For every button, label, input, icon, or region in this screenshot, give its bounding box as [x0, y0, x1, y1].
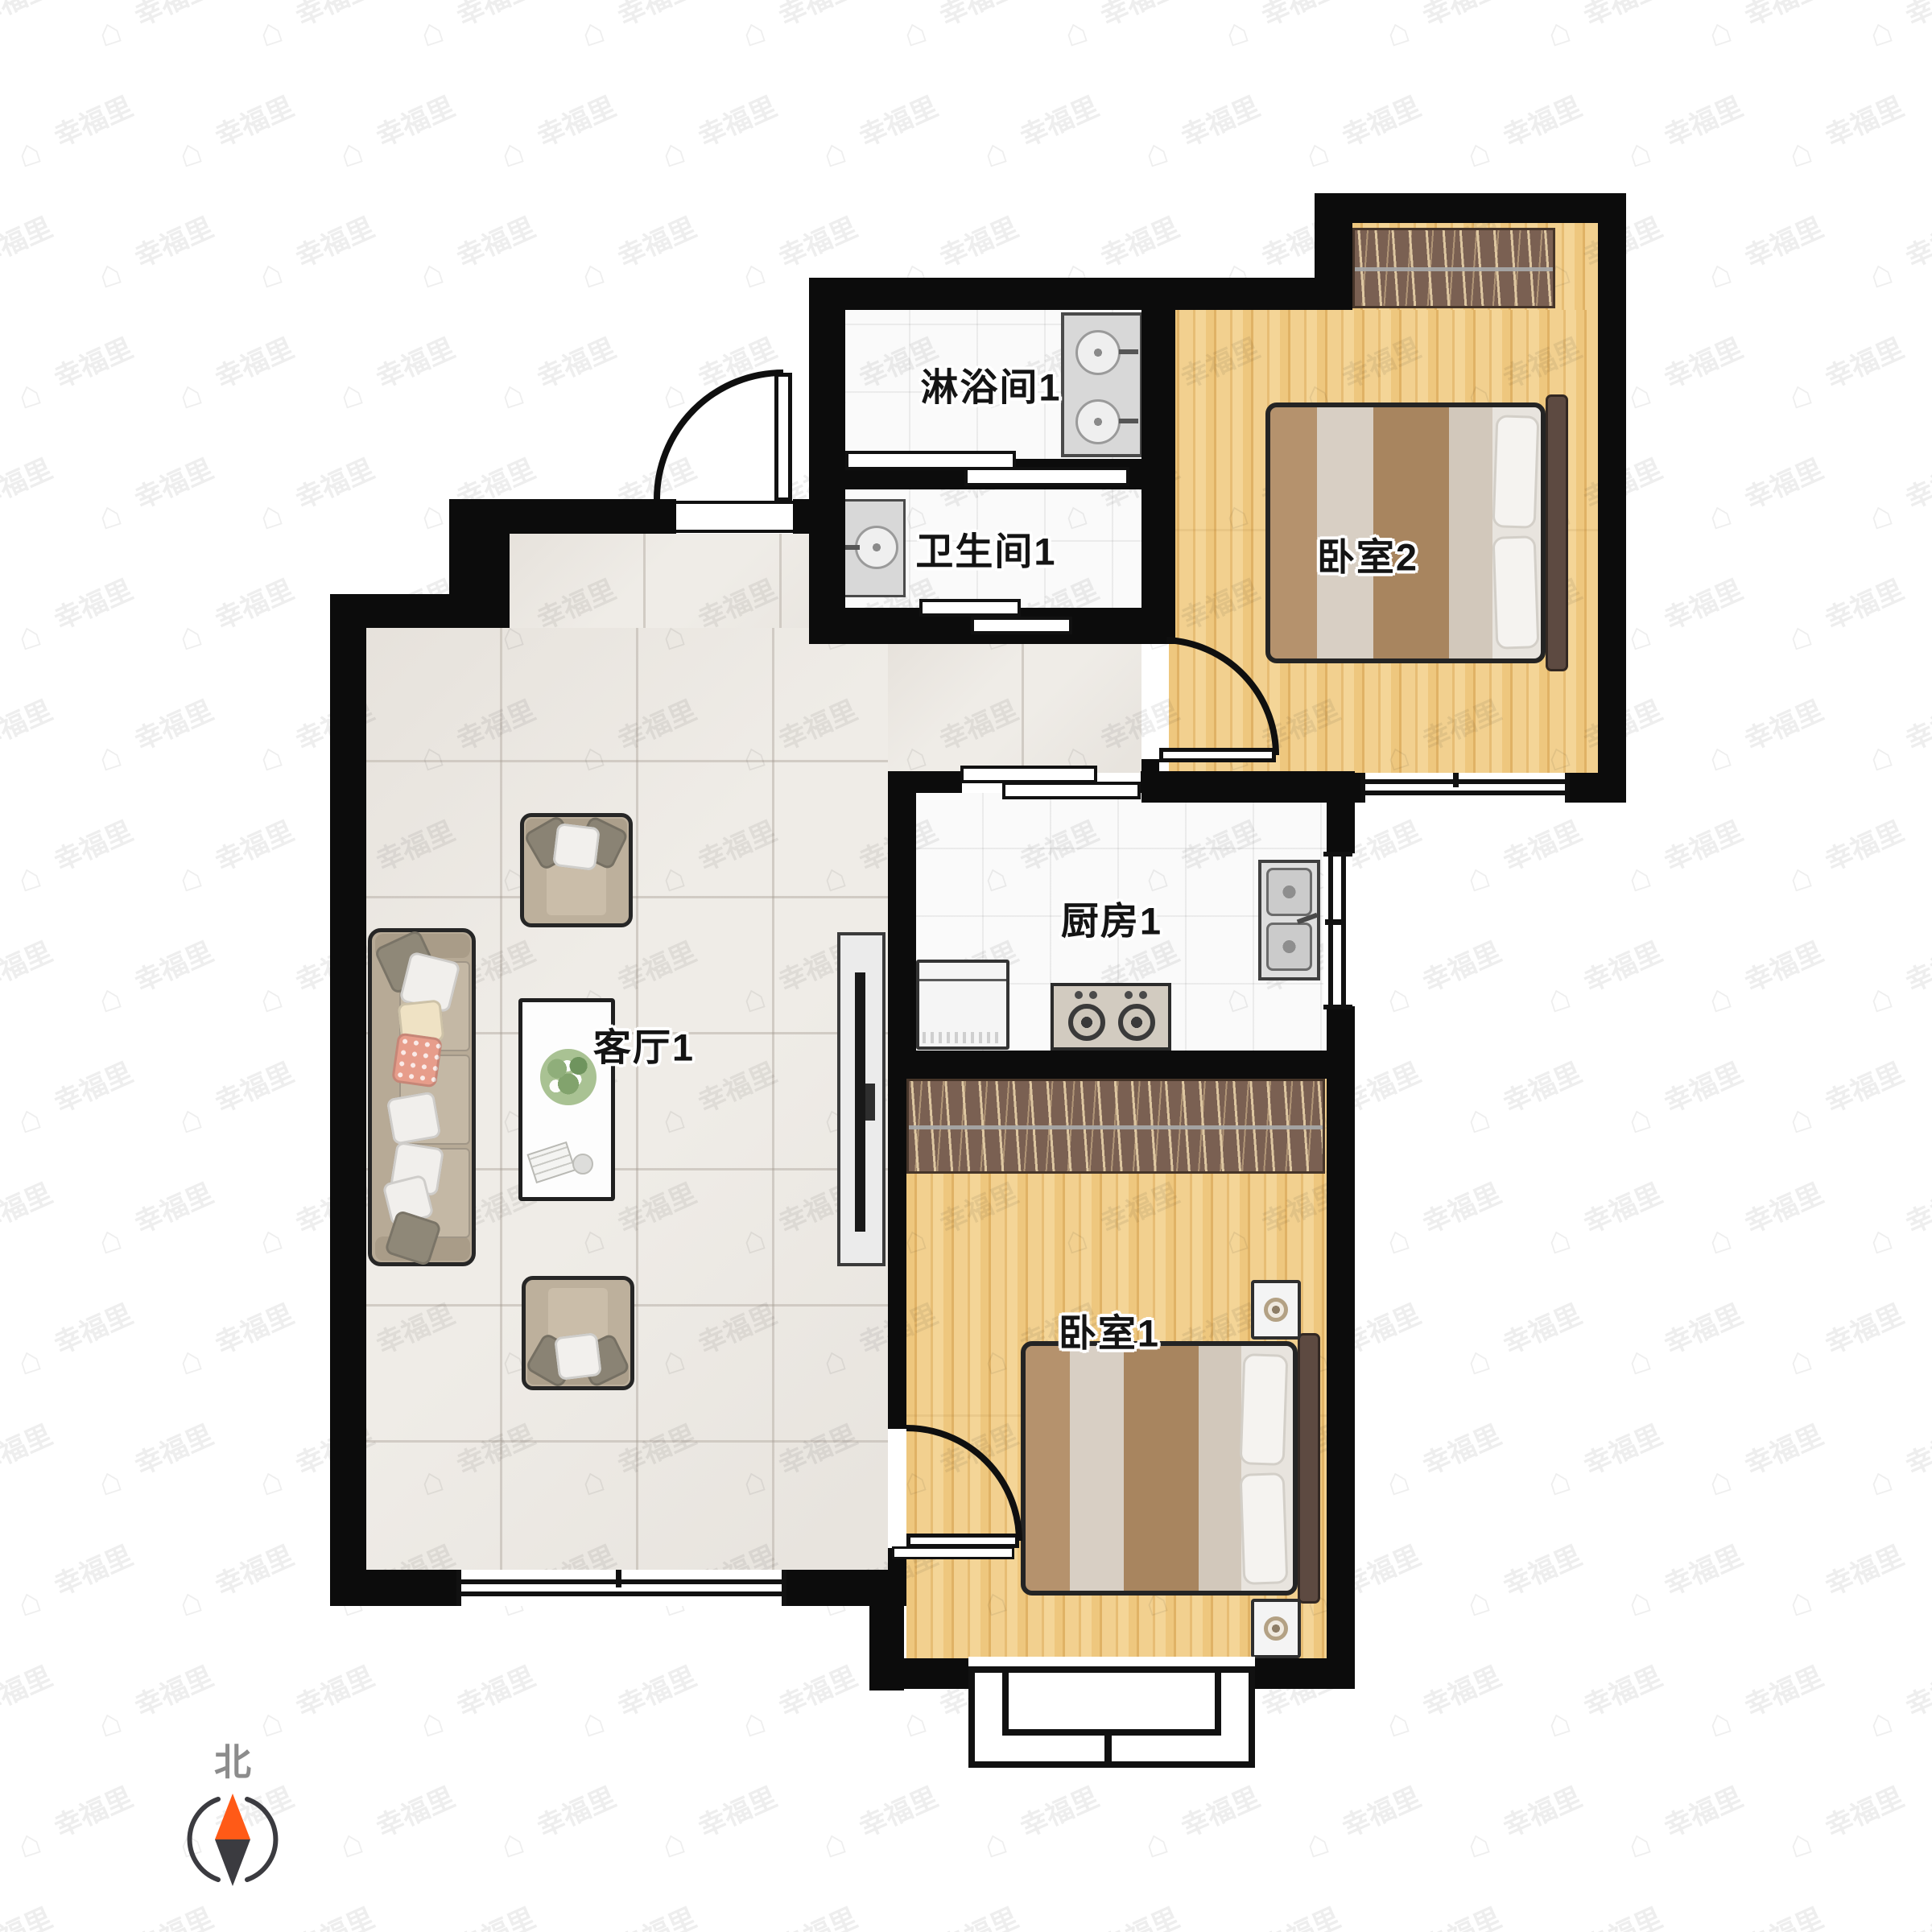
bed-pillow — [1240, 1353, 1289, 1466]
house-watermark-icon: ⌂ — [1863, 490, 1897, 539]
house-watermark-icon: ⌂ — [1380, 1456, 1414, 1505]
house-watermark-icon: ⌂ — [1460, 1335, 1495, 1384]
house-watermark-icon: ⌂ — [92, 1215, 126, 1263]
watermark: ⌂幸福里 — [1787, 1779, 1932, 1900]
watermark-text: 幸福里 — [47, 85, 138, 154]
watermark: ⌂幸福里 — [258, 1900, 419, 1932]
watermark-text: 幸福里 — [0, 1413, 58, 1482]
watermark-text: 幸福里 — [610, 1654, 701, 1724]
sofa — [368, 928, 476, 1266]
watermark: ⌂幸福里 — [1787, 1538, 1932, 1658]
watermark: ⌂幸福里 — [1626, 89, 1787, 209]
watermark: ⌂幸福里 — [1868, 0, 1932, 89]
watermark: ⌂幸福里 — [1868, 934, 1932, 1055]
wall — [786, 1570, 888, 1606]
house-watermark-icon: ⌂ — [816, 128, 851, 176]
watermark-text: 幸福里 — [1737, 1896, 1828, 1932]
wall — [449, 499, 510, 628]
house-watermark-icon: ⌂ — [655, 369, 690, 418]
room-label-kitchen: 厨房1 — [1061, 890, 1162, 946]
wall — [888, 773, 916, 1079]
watermark-text: 幸福里 — [1415, 1654, 1506, 1724]
watermark: ⌂幸福里 — [1868, 1417, 1932, 1538]
window-frame-line — [1360, 791, 1570, 795]
watermark: ⌂幸福里 — [1787, 1296, 1932, 1417]
watermark-text: 幸福里 — [1093, 1896, 1184, 1932]
house-watermark-icon: ⌂ — [253, 7, 287, 56]
house-watermark-icon: ⌂ — [172, 611, 207, 659]
house-watermark-icon: ⌂ — [1621, 1577, 1656, 1625]
watermark: ⌂幸福里 — [1868, 692, 1932, 813]
watermark: ⌂幸福里 — [97, 1417, 258, 1538]
watermark: ⌂幸福里 — [1626, 1055, 1787, 1175]
house-watermark-icon: ⌂ — [1380, 1698, 1414, 1746]
shower-vanity — [1061, 312, 1143, 457]
kitchen-sink — [1258, 860, 1320, 980]
house-watermark-icon: ⌂ — [11, 1577, 46, 1625]
house-watermark-icon: ⌂ — [92, 732, 126, 780]
watermark: ⌂幸福里 — [1707, 1417, 1868, 1538]
north-compass-icon — [171, 1777, 295, 1901]
watermark-text: 幸福里 — [1737, 447, 1828, 516]
house-watermark-icon: ⌂ — [1863, 1698, 1897, 1746]
watermark-text: 幸福里 — [1898, 0, 1932, 34]
tv-stand — [837, 932, 885, 1266]
watermark: ⌂幸福里 — [1063, 1900, 1224, 1932]
watermark-text: 幸福里 — [1576, 1654, 1667, 1724]
bay-window-mullion — [1104, 1731, 1112, 1768]
window-frame-end — [1565, 773, 1570, 803]
watermark-text: 幸福里 — [1415, 1413, 1506, 1482]
watermark-text: 幸福里 — [1818, 809, 1909, 878]
watermark-text: 幸福里 — [1818, 1292, 1909, 1361]
armchair — [520, 813, 633, 927]
watermark-text: 幸福里 — [1737, 688, 1828, 758]
house-watermark-icon: ⌂ — [1380, 7, 1414, 56]
watermark: ⌂幸福里 — [1868, 209, 1932, 330]
watermark-text: 幸福里 — [127, 1413, 218, 1482]
watermark-text: 幸福里 — [691, 85, 782, 154]
wardrobe-rail — [1355, 267, 1553, 271]
watermark: ⌂幸福里 — [177, 572, 338, 692]
watermark-text: 幸福里 — [1737, 205, 1828, 275]
watermark: ⌂幸福里 — [1626, 1296, 1787, 1417]
house-watermark-icon: ⌂ — [11, 852, 46, 901]
watermark-text: 幸福里 — [530, 326, 621, 395]
throw-pillow — [386, 1091, 441, 1146]
watermark: ⌂幸福里 — [338, 330, 499, 451]
watermark: ⌂幸福里 — [419, 209, 580, 330]
watermark: ⌂幸福里 — [1707, 1900, 1868, 1932]
house-watermark-icon: ⌂ — [1460, 1094, 1495, 1142]
watermark-text: 幸福里 — [1818, 568, 1909, 637]
house-watermark-icon: ⌂ — [1863, 973, 1897, 1022]
stove-knob — [1139, 991, 1147, 999]
watermark-text: 幸福里 — [369, 326, 460, 395]
house-watermark-icon: ⌂ — [172, 1094, 207, 1142]
house-watermark-icon: ⌂ — [977, 128, 1012, 176]
sliding-door — [964, 467, 1129, 486]
house-watermark-icon: ⌂ — [897, 7, 931, 56]
watermark: ⌂幸福里 — [1787, 572, 1932, 692]
house-watermark-icon: ⌂ — [333, 369, 368, 418]
house-watermark-icon: ⌂ — [253, 1456, 287, 1505]
watermark-text: 幸福里 — [1496, 85, 1587, 154]
watermark: ⌂幸福里 — [97, 209, 258, 330]
watermark-text: 幸福里 — [771, 205, 862, 275]
watermark-text: 幸福里 — [1657, 326, 1748, 395]
house-watermark-icon: ⌂ — [1058, 7, 1092, 56]
watermark-text: 幸福里 — [449, 205, 540, 275]
wardrobe-rail — [909, 1125, 1323, 1129]
bathroom-sink — [843, 499, 906, 597]
watermark: ⌂幸福里 — [1626, 813, 1787, 934]
tv-screen — [855, 972, 865, 1232]
house-watermark-icon: ⌂ — [1541, 973, 1575, 1022]
house-watermark-icon: ⌂ — [1380, 1215, 1414, 1263]
watermark: ⌂幸福里 — [1465, 89, 1626, 209]
watermark: ⌂幸福里 — [338, 89, 499, 209]
house-watermark-icon: ⌂ — [92, 973, 126, 1022]
watermark: ⌂幸福里 — [1787, 89, 1932, 209]
window — [1360, 773, 1570, 803]
watermark-text: 幸福里 — [1576, 930, 1667, 999]
house-watermark-icon: ⌂ — [1219, 7, 1253, 56]
watermark-text: 幸福里 — [0, 1654, 58, 1724]
wall — [1327, 1079, 1355, 1689]
watermark: ⌂幸福里 — [338, 1779, 499, 1900]
house-watermark-icon: ⌂ — [736, 1698, 770, 1746]
bedroom-2-door-leaf — [1159, 748, 1276, 762]
watermark-text: 幸福里 — [1657, 809, 1748, 878]
wardrobe — [906, 1079, 1325, 1174]
wall — [793, 499, 809, 534]
watermark-text: 幸福里 — [1576, 1171, 1667, 1241]
watermark-text: 幸福里 — [1737, 0, 1828, 34]
watermark-text: 幸福里 — [288, 205, 379, 275]
house-watermark-icon: ⌂ — [1460, 1577, 1495, 1625]
faucet — [1119, 349, 1138, 354]
window-frame-end — [456, 1570, 461, 1606]
watermark: ⌂幸福里 — [1385, 1658, 1546, 1779]
watermark: ⌂幸福里 — [177, 813, 338, 934]
wall — [809, 278, 1352, 310]
watermark: ⌂幸福里 — [660, 89, 821, 209]
house-watermark-icon: ⌂ — [1541, 1215, 1575, 1263]
magazine — [526, 1141, 576, 1183]
house-watermark-icon: ⌂ — [575, 249, 609, 297]
watermark-text: 幸福里 — [771, 1654, 862, 1724]
stove-knob — [1075, 991, 1083, 999]
house-watermark-icon: ⌂ — [1863, 732, 1897, 780]
watermark: ⌂幸福里 — [660, 1779, 821, 1900]
wall — [1315, 193, 1352, 310]
watermark-text: 幸福里 — [1335, 1775, 1426, 1844]
watermark-text: 幸福里 — [1657, 1051, 1748, 1120]
watermark: ⌂幸福里 — [1143, 89, 1304, 209]
watermark: ⌂幸福里 — [1868, 1175, 1932, 1296]
house-watermark-icon: ⌂ — [1138, 128, 1173, 176]
watermark-text: 幸福里 — [1496, 1534, 1587, 1603]
watermark-text: 幸福里 — [1013, 1775, 1104, 1844]
watermark: ⌂幸福里 — [982, 89, 1143, 209]
watermark-text: 幸福里 — [1415, 0, 1506, 34]
watermark-text: 幸福里 — [0, 205, 58, 275]
watermark-text: 幸福里 — [1013, 85, 1104, 154]
house-watermark-icon: ⌂ — [253, 249, 287, 297]
watermark-text: 幸福里 — [127, 1171, 218, 1241]
watermark: ⌂幸福里 — [1787, 330, 1932, 451]
watermark-text: 幸福里 — [127, 0, 218, 34]
house-watermark-icon: ⌂ — [1621, 1818, 1656, 1867]
house-watermark-icon: ⌂ — [816, 1818, 851, 1867]
watermark: ⌂幸福里 — [1385, 1417, 1546, 1538]
house-watermark-icon: ⌂ — [92, 1456, 126, 1505]
watermark-text: 幸福里 — [127, 447, 218, 516]
house-watermark-icon: ⌂ — [977, 1818, 1012, 1867]
house-watermark-icon: ⌂ — [1621, 128, 1656, 176]
watermark: ⌂幸福里 — [16, 1055, 177, 1175]
watermark-text: 幸福里 — [1576, 1896, 1667, 1932]
watermark: ⌂幸福里 — [0, 692, 97, 813]
watermark: ⌂幸福里 — [0, 1175, 97, 1296]
watermark: ⌂幸福里 — [0, 451, 97, 572]
watermark: ⌂幸福里 — [16, 1779, 177, 1900]
house-watermark-icon: ⌂ — [1621, 369, 1656, 418]
watermark: ⌂幸福里 — [258, 0, 419, 89]
stove-burner — [1068, 1004, 1105, 1041]
wall — [809, 278, 845, 644]
house-watermark-icon: ⌂ — [1702, 1215, 1736, 1263]
watermark-text: 幸福里 — [1254, 1896, 1345, 1932]
watermark-text: 幸福里 — [449, 1896, 540, 1932]
watermark: ⌂幸福里 — [1868, 1658, 1932, 1779]
bedroom-1-door-leaf — [906, 1534, 1019, 1548]
room-label-bedroom2: 卧室2 — [1317, 526, 1418, 582]
window-frame-end — [782, 1570, 786, 1606]
watermark-text: 幸福里 — [0, 447, 58, 516]
watermark: ⌂幸福里 — [16, 330, 177, 451]
watermark: ⌂幸福里 — [177, 1296, 338, 1417]
watermark: ⌂幸福里 — [1626, 572, 1787, 692]
watermark: ⌂幸福里 — [258, 451, 419, 572]
house-watermark-icon: ⌂ — [1782, 1818, 1817, 1867]
house-watermark-icon: ⌂ — [1702, 973, 1736, 1022]
watermark-text: 幸福里 — [0, 930, 58, 999]
house-watermark-icon: ⌂ — [1702, 249, 1736, 297]
watermark: ⌂幸福里 — [1707, 692, 1868, 813]
watermark: ⌂幸福里 — [1626, 330, 1787, 451]
watermark: ⌂幸福里 — [1787, 813, 1932, 934]
watermark: ⌂幸福里 — [1868, 1900, 1932, 1932]
watermark-text: 幸福里 — [127, 1896, 218, 1932]
house-watermark-icon: ⌂ — [1863, 1456, 1897, 1505]
vanity-basin — [1075, 399, 1121, 444]
wall — [1598, 193, 1626, 803]
wall — [869, 1658, 976, 1689]
house-watermark-icon: ⌂ — [1380, 973, 1414, 1022]
watermark-text: 幸福里 — [1496, 1775, 1587, 1844]
house-watermark-icon: ⌂ — [414, 7, 448, 56]
bed-headboard — [1298, 1333, 1320, 1604]
nightstand — [1251, 1599, 1301, 1658]
watermark-text: 幸福里 — [127, 205, 218, 275]
armchair — [522, 1276, 634, 1390]
watermark-text: 幸福里 — [1657, 568, 1748, 637]
watermark-text: 幸福里 — [47, 568, 138, 637]
house-watermark-icon: ⌂ — [575, 7, 609, 56]
wall — [1141, 278, 1175, 644]
room-label-shower: 淋浴间1 — [920, 357, 1061, 412]
sink-basin — [1266, 923, 1312, 971]
house-watermark-icon: ⌂ — [333, 128, 368, 176]
watermark: ⌂幸福里 — [419, 1900, 580, 1932]
watermark-text: 幸福里 — [610, 205, 701, 275]
watermark: ⌂幸福里 — [1224, 1900, 1385, 1932]
stove-knob — [1125, 991, 1133, 999]
watermark-text: 幸福里 — [208, 568, 299, 637]
house-watermark-icon: ⌂ — [92, 1698, 126, 1746]
watermark: ⌂幸福里 — [1546, 1900, 1707, 1932]
watermark-text: 幸福里 — [47, 1775, 138, 1844]
house-watermark-icon: ⌂ — [1782, 1094, 1817, 1142]
watermark-text: 幸福里 — [771, 0, 862, 34]
watermark-text: 幸福里 — [0, 0, 58, 34]
room-label-bathroom: 卫生间1 — [915, 521, 1056, 576]
watermark-text: 幸福里 — [127, 930, 218, 999]
wall — [330, 1570, 456, 1606]
watermark-text: 幸福里 — [610, 1896, 701, 1932]
house-watermark-icon: ⌂ — [11, 1818, 46, 1867]
watermark-text: 幸福里 — [288, 1654, 379, 1724]
watermark: ⌂幸福里 — [821, 1779, 982, 1900]
watermark-text: 幸福里 — [1898, 447, 1932, 516]
watermark-text: 幸福里 — [1898, 1654, 1932, 1724]
watermark: ⌂幸福里 — [580, 209, 741, 330]
watermark: ⌂幸福里 — [1707, 209, 1868, 330]
watermark-text: 幸福里 — [1818, 1534, 1909, 1603]
wall — [888, 1079, 906, 1429]
sink-basin — [1266, 868, 1312, 916]
watermark: ⌂幸福里 — [97, 934, 258, 1055]
house-watermark-icon: ⌂ — [1863, 1215, 1897, 1263]
watermark-text: 幸福里 — [1898, 1171, 1932, 1241]
window-mullion — [1453, 773, 1459, 787]
throw-pillow — [391, 1032, 443, 1088]
throw-pillow — [554, 1332, 602, 1381]
entry-door-sill — [676, 501, 793, 533]
watermark: ⌂幸福里 — [902, 0, 1063, 89]
watermark: ⌂幸福里 — [0, 209, 97, 330]
window — [456, 1570, 786, 1606]
watermark-text: 幸福里 — [932, 205, 1023, 275]
house-watermark-icon: ⌂ — [1782, 369, 1817, 418]
stove — [1051, 983, 1171, 1051]
house-watermark-icon: ⌂ — [414, 490, 448, 539]
bed-pillow — [1240, 1472, 1289, 1585]
entry-door-arc — [657, 373, 783, 499]
house-watermark-icon: ⌂ — [1863, 249, 1897, 297]
wardrobe — [1352, 228, 1555, 308]
window-frame-line — [456, 1591, 786, 1596]
watermark-text: 幸福里 — [47, 1051, 138, 1120]
window-mullion — [1325, 919, 1346, 925]
bay-window-inner-frame — [1002, 1666, 1221, 1736]
coaster — [572, 1154, 593, 1174]
fridge-grill — [923, 1032, 1003, 1043]
watermark-text: 幸福里 — [1657, 1292, 1748, 1361]
watermark-text: 幸福里 — [208, 1051, 299, 1120]
watermark-text: 幸福里 — [208, 1534, 299, 1603]
watermark: ⌂幸福里 — [1626, 1779, 1787, 1900]
watermark: ⌂幸福里 — [1546, 1417, 1707, 1538]
watermark-text: 幸福里 — [932, 1896, 1023, 1932]
house-watermark-icon: ⌂ — [1702, 1698, 1736, 1746]
house-watermark-icon: ⌂ — [11, 369, 46, 418]
watermark: ⌂幸福里 — [258, 1658, 419, 1779]
watermark: ⌂幸福里 — [97, 1175, 258, 1296]
wall — [510, 499, 676, 534]
watermark-text: 幸福里 — [610, 0, 701, 34]
watermark: ⌂幸福里 — [1546, 934, 1707, 1055]
watermark-text: 幸福里 — [47, 809, 138, 878]
watermark: ⌂幸福里 — [1707, 1658, 1868, 1779]
watermark: ⌂幸福里 — [499, 330, 660, 451]
window-frame-line — [1328, 852, 1333, 1009]
house-watermark-icon: ⌂ — [1702, 1456, 1736, 1505]
watermark: ⌂幸福里 — [1707, 0, 1868, 89]
compass-needle-north — [215, 1794, 250, 1839]
watermark-text: 幸福里 — [1093, 0, 1184, 34]
watermark-text: 幸福里 — [1818, 85, 1909, 154]
watermark-text: 幸福里 — [1254, 0, 1345, 34]
watermark-text: 幸福里 — [127, 1654, 218, 1724]
watermark: ⌂幸福里 — [1546, 1175, 1707, 1296]
house-watermark-icon: ⌂ — [1621, 1094, 1656, 1142]
watermark: ⌂幸福里 — [177, 1055, 338, 1175]
house-watermark-icon: ⌂ — [655, 1818, 690, 1867]
watermark-text: 幸福里 — [1657, 1775, 1748, 1844]
watermark-text: 幸福里 — [1898, 205, 1932, 275]
watermark: ⌂幸福里 — [97, 0, 258, 89]
watermark: ⌂幸福里 — [821, 89, 982, 209]
house-watermark-icon: ⌂ — [11, 1094, 46, 1142]
house-watermark-icon: ⌂ — [11, 128, 46, 176]
watermark-text: 幸福里 — [127, 688, 218, 758]
sliding-door — [960, 766, 1097, 783]
house-watermark-icon: ⌂ — [1460, 128, 1495, 176]
watermark-text: 幸福里 — [1657, 85, 1748, 154]
watermark: ⌂幸福里 — [1385, 0, 1546, 89]
house-watermark-icon: ⌂ — [1863, 7, 1897, 56]
watermark: ⌂幸福里 — [16, 1538, 177, 1658]
house-watermark-icon: ⌂ — [1299, 128, 1334, 176]
watermark-text: 幸福里 — [1496, 809, 1587, 878]
watermark: ⌂幸福里 — [1304, 89, 1465, 209]
nightstand — [1251, 1280, 1301, 1340]
house-watermark-icon: ⌂ — [92, 7, 126, 56]
house-watermark-icon: ⌂ — [253, 732, 287, 780]
watermark-text: 幸福里 — [852, 1775, 943, 1844]
window — [1323, 852, 1352, 1009]
wall — [1315, 193, 1626, 223]
fridge — [916, 960, 1009, 1050]
house-watermark-icon: ⌂ — [736, 7, 770, 56]
watermark: ⌂幸福里 — [97, 451, 258, 572]
house-watermark-icon: ⌂ — [1621, 611, 1656, 659]
watermark-text: 幸福里 — [1415, 1896, 1506, 1932]
watermark: ⌂幸福里 — [16, 572, 177, 692]
